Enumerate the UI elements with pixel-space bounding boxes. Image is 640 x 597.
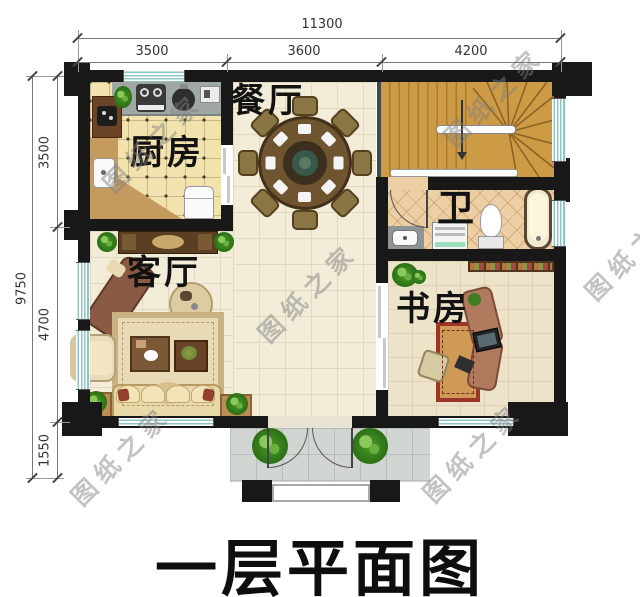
dim-line-segments-top bbox=[78, 62, 561, 63]
plate bbox=[102, 111, 106, 115]
kitchen-slide-panel bbox=[223, 148, 226, 174]
plate bbox=[109, 116, 113, 120]
dim-left-seg-1: 3500 bbox=[38, 123, 53, 183]
fridge bbox=[184, 186, 214, 219]
dining-chair bbox=[238, 150, 258, 176]
extension-line bbox=[227, 54, 228, 72]
bath-door-opening bbox=[388, 177, 428, 190]
wall-left-mullion bbox=[78, 320, 90, 330]
corner-column bbox=[508, 402, 568, 436]
wall-center-lower bbox=[376, 390, 388, 416]
toilet-bowl bbox=[480, 204, 502, 237]
porch-pillar-left bbox=[242, 480, 272, 502]
extension-line bbox=[50, 422, 70, 423]
washer-detail bbox=[435, 242, 465, 247]
place-setting bbox=[298, 192, 311, 202]
entry-bush-right bbox=[352, 428, 388, 464]
toilet-tank bbox=[478, 236, 504, 249]
living-plant-right bbox=[214, 232, 234, 252]
books bbox=[470, 263, 552, 270]
dim-top-seg-1: 3500 bbox=[112, 44, 192, 59]
wall-bath-bottom bbox=[376, 249, 566, 261]
landing-rail bbox=[390, 169, 518, 177]
place-setting bbox=[266, 157, 276, 170]
sofa-cushion bbox=[166, 385, 190, 403]
entry-step bbox=[272, 484, 370, 502]
kitchen-sink-round bbox=[172, 88, 195, 111]
stair-window-right bbox=[552, 98, 566, 162]
stair-direction-arrow bbox=[461, 100, 463, 154]
dim-left-seg-3: 1550 bbox=[38, 421, 53, 481]
dim-line-total-left bbox=[32, 76, 33, 478]
bath-window-right bbox=[552, 200, 566, 247]
living-window-left-2 bbox=[76, 330, 90, 390]
cup bbox=[191, 303, 198, 310]
dining-chair bbox=[292, 210, 318, 230]
bath-door-leaf bbox=[426, 190, 428, 228]
corner-column bbox=[552, 62, 592, 96]
kitchen-plant bbox=[114, 86, 132, 108]
extension-line bbox=[50, 227, 70, 228]
stair-arrow-head bbox=[457, 152, 467, 160]
kitchen-window bbox=[123, 70, 185, 82]
wall-right-pier bbox=[554, 158, 570, 202]
dim-total-top: 11300 bbox=[282, 17, 362, 32]
corner-column bbox=[64, 62, 90, 96]
washer-detail bbox=[435, 233, 465, 236]
living-window-bottom bbox=[118, 418, 214, 426]
dim-line-segments-left bbox=[57, 76, 58, 478]
dim-top-seg-3: 4200 bbox=[431, 44, 511, 59]
stair-balustrade bbox=[377, 82, 381, 177]
study-window-bottom bbox=[438, 418, 514, 426]
entry-threshold bbox=[268, 416, 352, 428]
lazy-susan-detail bbox=[299, 157, 311, 169]
wall-kitchen-bottom bbox=[90, 219, 233, 231]
bathtub-basin bbox=[529, 193, 547, 241]
wall-center-upper bbox=[376, 177, 388, 283]
living-window-left-1 bbox=[76, 262, 90, 320]
label-study: 书房 bbox=[396, 292, 470, 326]
label-bath: 卫 bbox=[437, 190, 477, 227]
label-living: 客厅 bbox=[127, 256, 201, 290]
kitchen-table-top bbox=[97, 106, 117, 126]
study-slide-panel bbox=[378, 286, 381, 338]
stove-front bbox=[138, 105, 164, 110]
place-setting bbox=[298, 124, 311, 134]
sideboard-tray bbox=[152, 235, 184, 249]
sideboard-decor bbox=[198, 234, 212, 250]
fridge-door-line bbox=[185, 198, 213, 199]
side-table-plant bbox=[226, 393, 248, 415]
wall-porch-right bbox=[352, 416, 430, 428]
floor-plan-canvas: 11300 3500 3600 4200 9750 3500 4700 1550 bbox=[0, 0, 640, 597]
tub-drain bbox=[536, 236, 541, 241]
small-appliance bbox=[200, 86, 220, 103]
entry-door-leaf-left bbox=[267, 428, 269, 468]
place-setting bbox=[334, 157, 344, 170]
study-slide-panel bbox=[383, 338, 386, 388]
corner-column bbox=[62, 402, 102, 436]
stove-burner bbox=[140, 88, 149, 97]
living-plant-left bbox=[97, 232, 117, 252]
label-dining: 餐厅 bbox=[231, 84, 305, 118]
dining-chair bbox=[352, 150, 372, 176]
sink-drain bbox=[101, 170, 106, 175]
throw-pillow bbox=[117, 388, 130, 401]
faucet bbox=[180, 84, 188, 89]
throw-pillow bbox=[202, 388, 215, 402]
appliance-detail bbox=[204, 90, 210, 98]
dim-total-left: 9750 bbox=[15, 259, 30, 319]
watermark: 图纸之家 bbox=[576, 192, 640, 308]
stair-handrail bbox=[436, 125, 516, 134]
doily bbox=[144, 350, 158, 361]
wall-porch-left bbox=[230, 416, 268, 428]
label-kitchen: 厨房 bbox=[130, 136, 204, 170]
dim-left-seg-2: 4700 bbox=[38, 295, 53, 355]
dim-line-total-top bbox=[78, 38, 561, 39]
page-title: 一层平面图 bbox=[0, 518, 640, 597]
stove-burner bbox=[153, 88, 162, 97]
kitchen-slide-panel bbox=[227, 176, 230, 203]
extension-line bbox=[382, 54, 383, 72]
entry-door-leaf-right bbox=[351, 428, 353, 468]
sideboard-decor bbox=[122, 234, 136, 250]
dim-top-seg-2: 3600 bbox=[264, 44, 344, 59]
table-item bbox=[136, 340, 146, 348]
sink-drain bbox=[403, 236, 407, 240]
corner-column bbox=[64, 210, 90, 240]
flower-arrangement bbox=[181, 346, 197, 360]
study-plant-small bbox=[412, 270, 426, 284]
porch-pillar-right bbox=[370, 480, 400, 502]
sofa-cushion bbox=[141, 385, 165, 403]
